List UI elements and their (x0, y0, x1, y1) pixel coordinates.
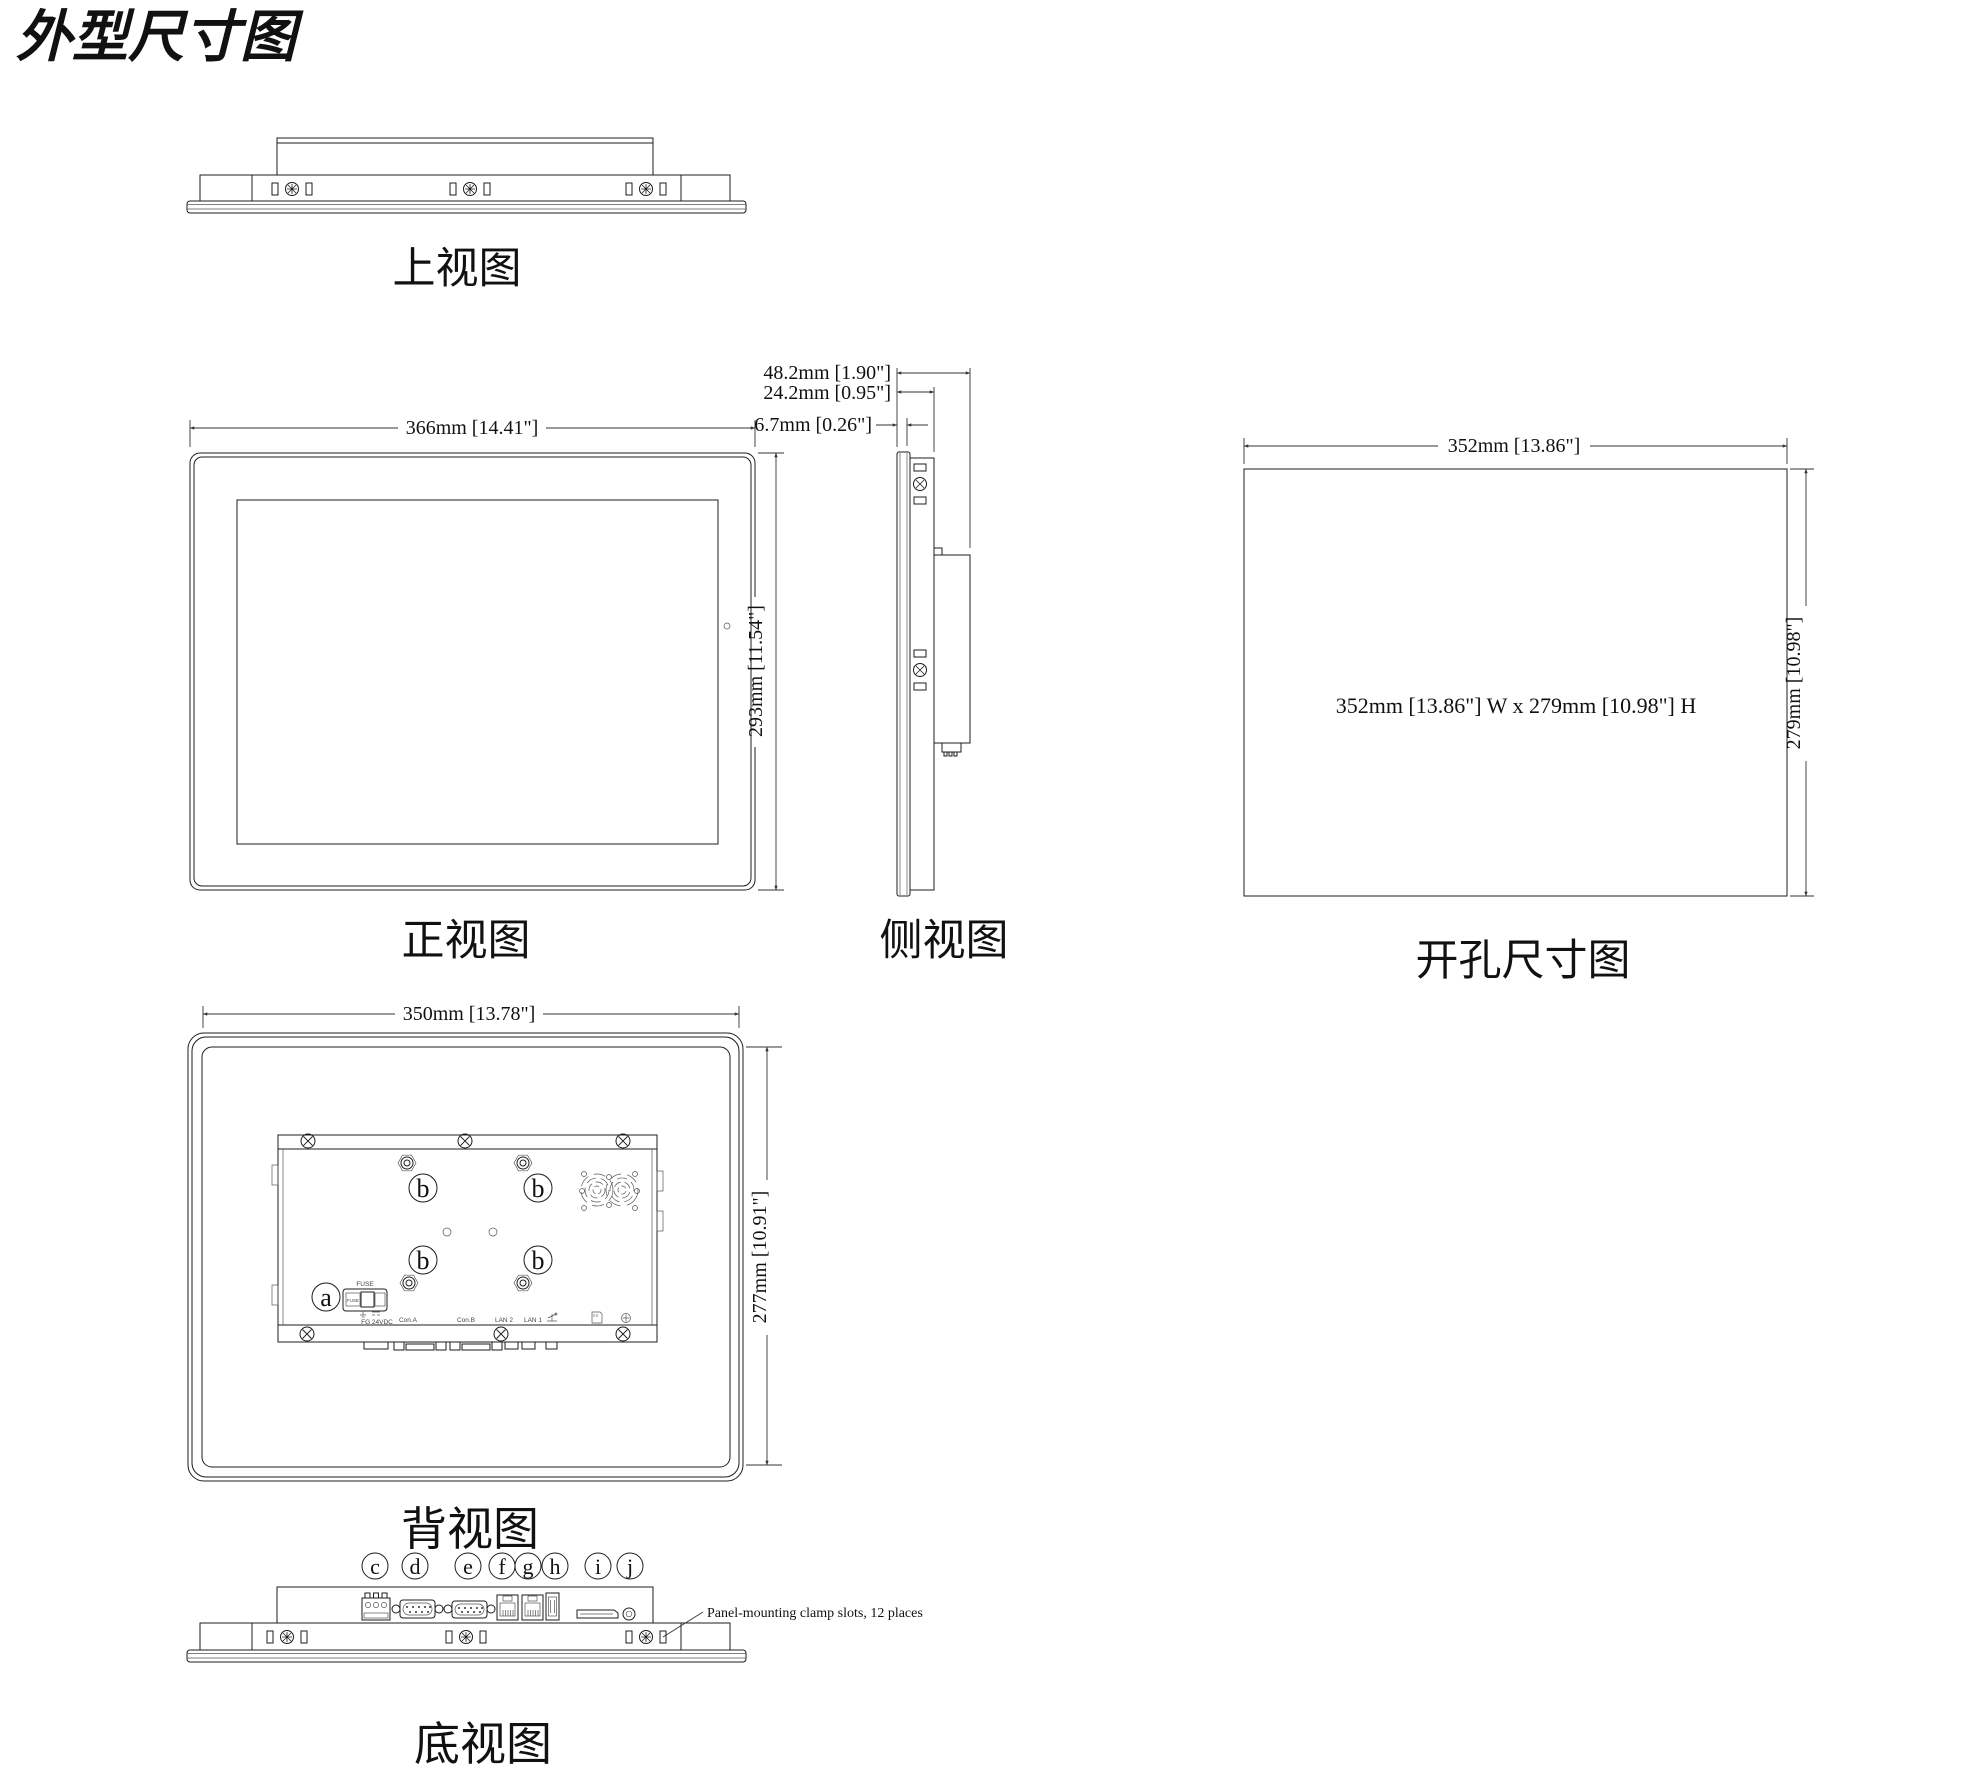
clamp-screw-icon (626, 183, 666, 196)
side-rear-box (934, 555, 970, 743)
dimension-drawing-page: 外型尺寸图 上视图 366mm [14.41"] 293mm [11.54"] … (0, 0, 1980, 1776)
callout-c: c (362, 1553, 388, 1579)
callout-d: d (402, 1553, 428, 1579)
callout-i: i (585, 1553, 611, 1579)
side-chassis (910, 458, 934, 890)
svg-text:a: a (320, 1283, 332, 1312)
rear-plate (278, 1135, 657, 1342)
power-port-label: FG 24VDC (361, 1319, 393, 1326)
port-label-cona: Con.A (399, 1317, 418, 1324)
svg-text:j: j (626, 1554, 633, 1579)
callout-e: e (455, 1553, 481, 1579)
clamp-screw-icon (272, 183, 312, 196)
bottom-view: c d e f g h i j (187, 1553, 923, 1770)
pe-ground-icon (622, 1314, 631, 1323)
port-label-conb: Con.B (457, 1317, 475, 1324)
side-bezel (897, 452, 910, 896)
cutout-view-label: 开孔尺寸图 (1416, 938, 1631, 985)
callout-h: h (542, 1553, 568, 1579)
front-width-dim: 366mm [14.41"] (406, 417, 539, 439)
callout-f: f (489, 1553, 515, 1579)
cutout-center-text: 352mm [13.86"] W x 279mm [10.98"] H (1336, 693, 1697, 718)
clamp-screw-icon (626, 1631, 666, 1644)
rear-view-label: 背视图 (401, 1504, 539, 1555)
bottom-view-label: 底视图 (414, 1719, 552, 1770)
top-view: 上视图 (187, 138, 746, 293)
clamp-screw-icon (450, 183, 490, 196)
cutout-height-dim: 279mm [10.98"] (1783, 617, 1805, 750)
svg-text:c: c (370, 1554, 380, 1579)
svg-text:b: b (417, 1174, 430, 1203)
callout-j: j (617, 1553, 643, 1579)
side-bottom-connector (942, 743, 961, 752)
side-depth-rear-dim: 24.2mm [0.95"] (763, 382, 891, 404)
svg-text:i: i (595, 1554, 601, 1579)
front-view: 366mm [14.41"] 293mm [11.54"] 正视图 (190, 417, 784, 965)
svg-text:b: b (532, 1174, 545, 1203)
rear-width-dim: 350mm [13.78"] (403, 1003, 536, 1025)
cutout-view: 352mm [13.86"] 279mm [10.98"] 352mm [13.… (1244, 435, 1816, 985)
rear-view: b b b b (188, 1003, 782, 1555)
callout-g: g (515, 1553, 541, 1579)
clamp-screw-icon (446, 1631, 486, 1644)
top-view-label: 上视图 (393, 246, 522, 293)
front-bezel (190, 453, 755, 890)
cutout-width-dim: 352mm [13.86"] (1448, 435, 1581, 457)
front-height-dim: 293mm [11.54"] (745, 605, 767, 737)
drawing-canvas: 外型尺寸图 上视图 366mm [14.41"] 293mm [11.54"] … (0, 0, 1980, 1776)
svg-text:b: b (532, 1246, 545, 1275)
side-depth-total-dim: 48.2mm [1.90"] (763, 362, 891, 384)
fuse-title: FUSE (356, 1281, 374, 1288)
clamp-slots-note: Panel-mounting clamp slots, 12 places (707, 1606, 923, 1621)
port-label-lan1: LAN 1 (524, 1317, 542, 1324)
port-label-lan2: LAN 2 (495, 1317, 513, 1324)
clamp-screw-icon (267, 1631, 307, 1644)
svg-text:FUSE: FUSE (347, 1298, 359, 1303)
svg-text:e: e (463, 1554, 473, 1579)
front-view-label: 正视图 (402, 918, 531, 965)
side-view: 48.2mm [1.90"] 24.2mm [0.95"] 6.7mm [0.2… (754, 362, 1008, 965)
svg-text:b: b (417, 1246, 430, 1275)
rear-height-dim: 277mm [10.91"] (749, 1191, 771, 1324)
page-title: 外型尺寸图 (16, 7, 304, 69)
svg-text:g: g (523, 1554, 534, 1579)
svg-text:d: d (410, 1554, 421, 1579)
svg-text:f: f (498, 1554, 506, 1579)
side-bezel-dim: 6.7mm [0.26"] (754, 414, 872, 436)
svg-text:h: h (550, 1554, 561, 1579)
side-view-label: 侧视图 (880, 918, 1009, 965)
cutout-rect (1244, 469, 1787, 896)
